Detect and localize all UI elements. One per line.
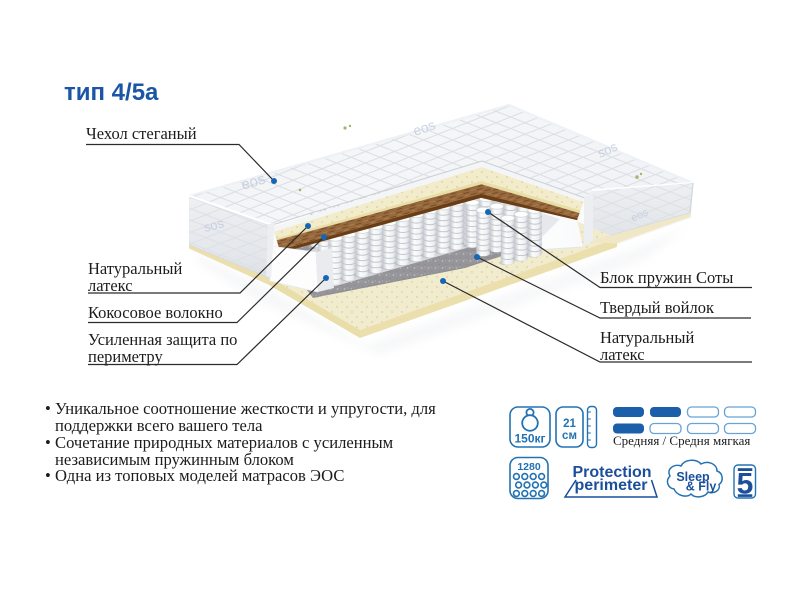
svg-text:Блок пружин Соты: Блок пружин Соты: [600, 268, 733, 287]
svg-text:1280: 1280: [517, 461, 541, 473]
svg-text:•: •: [45, 399, 51, 418]
svg-text:Твердый войлок: Твердый войлок: [600, 298, 715, 317]
svg-text:150кг: 150кг: [514, 432, 545, 446]
svg-text:& Fly: & Fly: [686, 480, 717, 494]
svg-text:perimeter: perimeter: [575, 477, 648, 494]
svg-text:Средняя / Средня мягкая: Средняя / Средня мягкая: [613, 433, 750, 448]
svg-text:латекс: латекс: [88, 276, 133, 295]
svg-text:•: •: [45, 466, 51, 485]
svg-text:латекс: латекс: [600, 345, 645, 364]
svg-text:•: •: [45, 433, 51, 452]
svg-text:см: см: [562, 430, 577, 442]
svg-text:21: 21: [563, 418, 576, 430]
svg-text:тип 4/5a: тип 4/5a: [64, 79, 159, 106]
svg-text:периметру: периметру: [88, 347, 163, 366]
svg-text:Одна из топовых моделей матрас: Одна из топовых моделей матрасов ЭОС: [55, 466, 344, 485]
svg-text:Кокосовое волокно: Кокосовое волокно: [88, 303, 223, 322]
svg-text:Чехол стеганый: Чехол стеганый: [86, 124, 197, 143]
